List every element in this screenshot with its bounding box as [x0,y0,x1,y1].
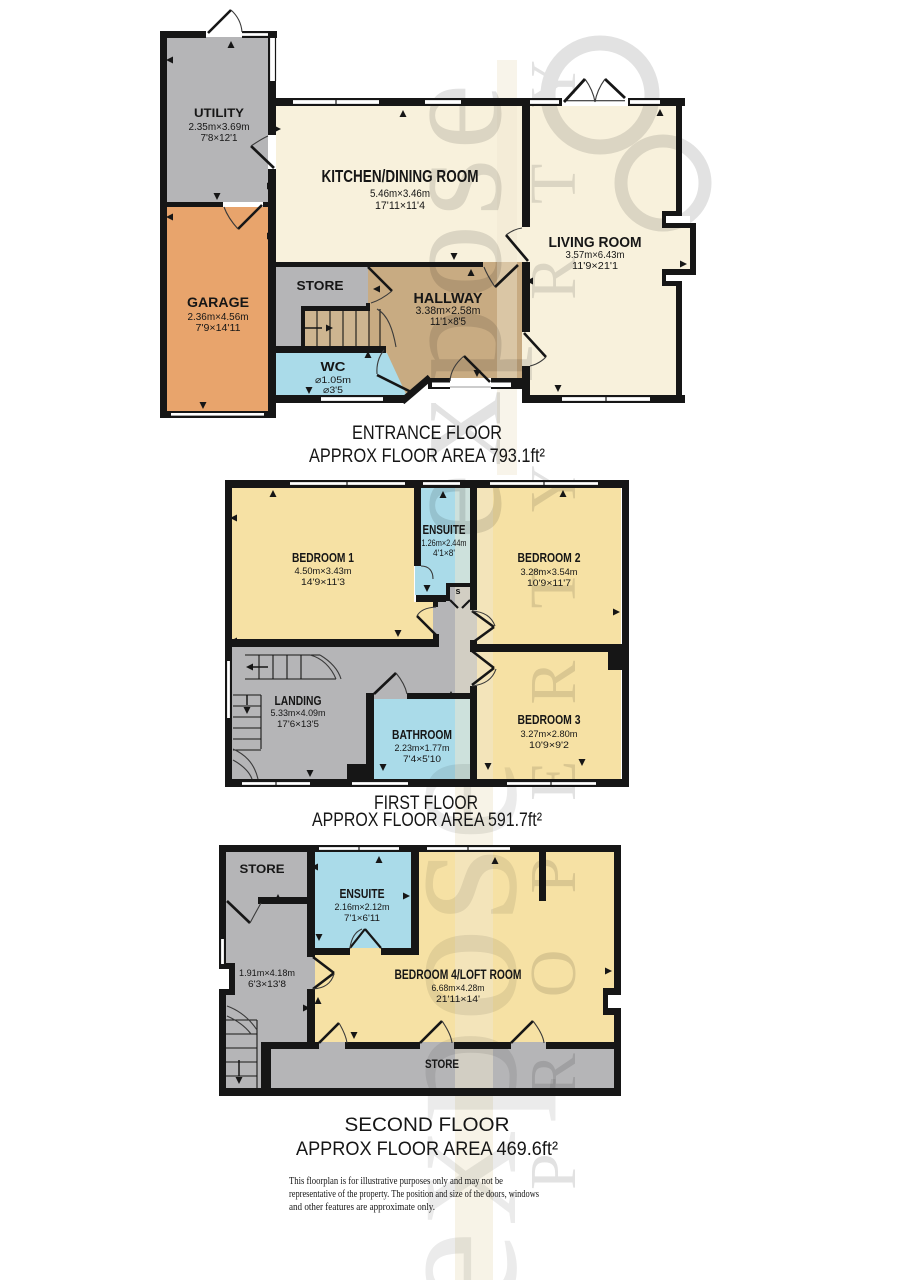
svg-text:10'9×9'2: 10'9×9'2 [529,740,569,751]
svg-text:APPROX FLOOR AREA 469.6ft²: APPROX FLOOR AREA 469.6ft² [296,1139,558,1160]
svg-text:6'3×13'8: 6'3×13'8 [248,979,286,989]
svg-text:LANDING: LANDING [275,693,322,708]
svg-text:7'4×5'10: 7'4×5'10 [403,754,441,765]
svg-text:7'1×6'11: 7'1×6'11 [344,913,380,923]
svg-text:6.68m×4.28m: 6.68m×4.28m [432,983,485,994]
svg-text:1.91m×4.18m: 1.91m×4.18m [239,968,295,978]
svg-text:APPROX FLOOR AREA 793.1ft²: APPROX FLOOR AREA 793.1ft² [309,446,545,467]
svg-text:7'9×14'11: 7'9×14'11 [196,323,241,334]
svg-text:STORE: STORE [425,1059,459,1071]
svg-text:UTILITY: UTILITY [194,108,244,120]
svg-text:5.46m×3.46m: 5.46m×3.46m [370,188,430,200]
svg-text:ENSUITE: ENSUITE [423,523,466,537]
svg-text:GARAGE: GARAGE [187,295,249,310]
svg-text:7'8×12'1: 7'8×12'1 [201,133,238,144]
svg-text:10'9×11'7: 10'9×11'7 [527,578,571,589]
svg-text:WC: WC [321,359,347,374]
svg-text:representative of the property: representative of the property. The posi… [289,1189,539,1200]
svg-text:2.36m×4.56m: 2.36m×4.56m [188,312,249,323]
svg-text:3.28m×3.54m: 3.28m×3.54m [521,567,578,578]
svg-text:4'1×8': 4'1×8' [433,548,455,558]
svg-text:BEDROOM 1: BEDROOM 1 [292,550,354,565]
svg-text:ENSUITE: ENSUITE [340,887,385,901]
svg-text:3.27m×2.80m: 3.27m×2.80m [521,729,578,740]
svg-text:2.35m×3.69m: 2.35m×3.69m [189,122,250,133]
svg-text:and other features are approxi: and other features are approximate only. [289,1202,435,1213]
svg-text:BEDROOM 3: BEDROOM 3 [518,712,581,727]
svg-text:s: s [455,586,460,596]
svg-text:⌀3'5: ⌀3'5 [323,385,343,396]
svg-text:SECOND FLOOR: SECOND FLOOR [345,1115,510,1136]
svg-text:KITCHEN/DINING ROOM: KITCHEN/DINING ROOM [322,166,479,186]
svg-text:17'11×11'4: 17'11×11'4 [375,200,425,212]
svg-text:2.16m×2.12m: 2.16m×2.12m [335,902,390,912]
svg-text:14'9×11'3: 14'9×11'3 [301,577,345,588]
svg-text:This floorplan is for illustra: This floorplan is for illustrative purpo… [289,1176,503,1187]
svg-text:11'9×21'1: 11'9×21'1 [572,260,618,272]
svg-text:5.33m×4.09m: 5.33m×4.09m [271,708,326,719]
svg-text:21'11×14': 21'11×14' [436,994,480,1005]
svg-text:STORE: STORE [297,278,344,293]
svg-text:11'1×8'5: 11'1×8'5 [430,316,466,328]
svg-text:BATHROOM: BATHROOM [392,727,452,742]
svg-text:4.50m×3.43m: 4.50m×3.43m [295,566,352,577]
svg-text:1.26m×2.44m: 1.26m×2.44m [422,538,467,548]
svg-text:BEDROOM 4/LOFT ROOM: BEDROOM 4/LOFT ROOM [395,967,522,982]
svg-text:APPROX FLOOR AREA 591.7ft²: APPROX FLOOR AREA 591.7ft² [312,810,542,831]
svg-text:BEDROOM 2: BEDROOM 2 [518,550,581,565]
svg-text:17'6×13'5: 17'6×13'5 [277,719,319,730]
svg-text:ENTRANCE FLOOR: ENTRANCE FLOOR [352,423,502,444]
svg-text:STORE: STORE [240,862,285,876]
svg-text:2.23m×1.77m: 2.23m×1.77m [395,743,450,754]
